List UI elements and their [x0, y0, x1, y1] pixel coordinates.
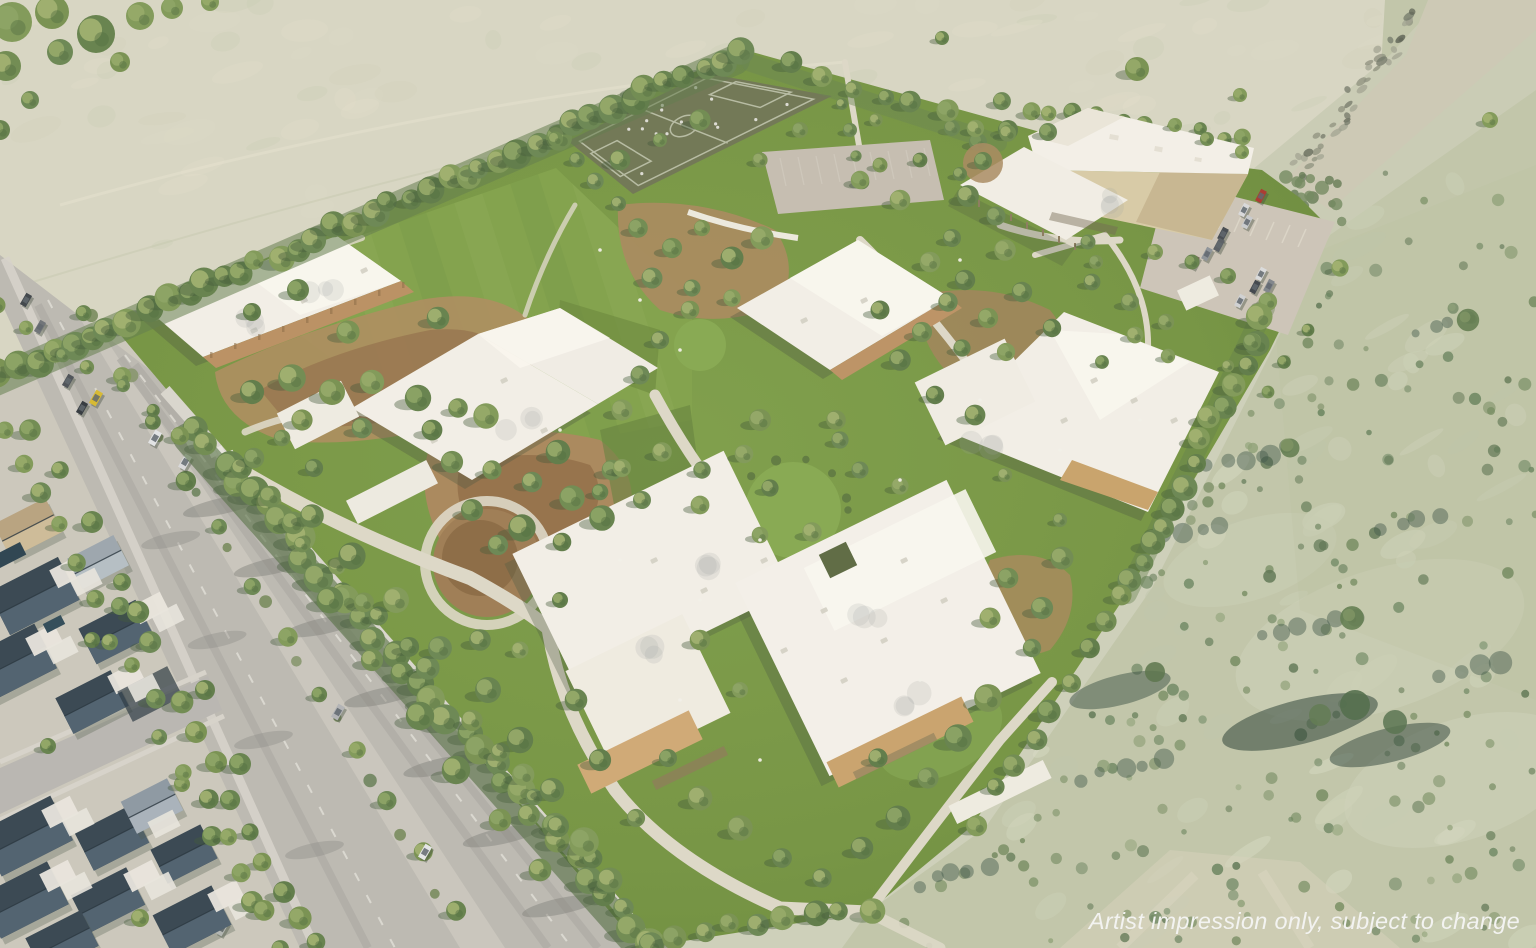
svg-text:Artist impression only, subjec: Artist impression only, subject to chang… — [1087, 908, 1520, 934]
